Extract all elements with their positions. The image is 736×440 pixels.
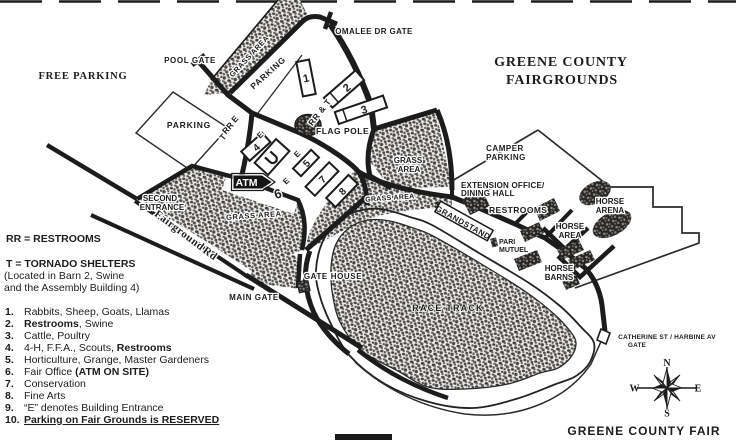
svg-text:8.: 8. xyxy=(5,390,14,402)
svg-text:BARNS: BARNS xyxy=(545,273,574,282)
svg-text:Fine Arts: Fine Arts xyxy=(24,390,65,402)
svg-text:Rabbits, Sheep, Goats, Llamas: Rabbits, Sheep, Goats, Llamas xyxy=(24,306,169,318)
svg-text:9.: 9. xyxy=(5,402,14,414)
svg-text:HORSE: HORSE xyxy=(556,222,585,231)
svg-text:RR = RESTROOMS: RR = RESTROOMS xyxy=(6,233,101,245)
svg-text:MAIN GATE: MAIN GATE xyxy=(229,293,279,302)
svg-text:Cattle, Poultry: Cattle, Poultry xyxy=(24,330,91,342)
svg-text:FAIRGROUNDS: FAIRGROUNDS xyxy=(506,73,618,88)
svg-text:GATE: GATE xyxy=(628,342,647,349)
svg-text:GRASS: GRASS xyxy=(394,156,423,165)
svg-text:MUTUEL: MUTUEL xyxy=(499,247,529,254)
svg-text:4-H, F.F.A., Scouts, Restrooms: 4-H, F.F.A., Scouts, Restrooms xyxy=(24,342,172,354)
svg-text:10.: 10. xyxy=(5,414,20,426)
svg-text:E: E xyxy=(695,384,702,395)
svg-text:FREE PARKING: FREE PARKING xyxy=(38,71,127,82)
svg-text:Fair Office (ATM ON SITE): Fair Office (ATM ON SITE) xyxy=(24,366,149,378)
svg-text:S: S xyxy=(664,409,670,420)
svg-text:4.: 4. xyxy=(5,342,14,354)
svg-text:5.: 5. xyxy=(5,354,14,366)
svg-text:PARKING: PARKING xyxy=(167,120,211,130)
svg-text:RESTROOMS: RESTROOMS xyxy=(489,205,547,215)
svg-text:CATHERINE ST / HARBINE AV: CATHERINE ST / HARBINE AV xyxy=(618,334,716,341)
svg-text:7.: 7. xyxy=(5,378,14,390)
svg-text:GATE HOUSE: GATE HOUSE xyxy=(304,272,362,281)
svg-text:Parking on Fair Grounds is RES: Parking on Fair Grounds is RESERVED xyxy=(24,414,220,426)
svg-text:AREA: AREA xyxy=(559,231,582,240)
svg-text:ARENA: ARENA xyxy=(596,206,625,215)
svg-text:T = TORNADO SHELTERS: T = TORNADO SHELTERS xyxy=(6,258,135,270)
svg-text:POOL GATE: POOL GATE xyxy=(164,56,216,65)
svg-text:N: N xyxy=(663,358,671,369)
svg-text:GREENE COUNTY FAIR: GREENE COUNTY FAIR xyxy=(567,424,720,438)
svg-text:1.: 1. xyxy=(5,306,14,318)
svg-text:Horticulture, Grange, Master G: Horticulture, Grange, Master Gardeners xyxy=(24,354,209,366)
svg-text:HORSE: HORSE xyxy=(545,264,574,273)
svg-text:CAMPER: CAMPER xyxy=(486,144,524,153)
svg-text:“E” denotes Building Entrance: “E” denotes Building Entrance xyxy=(24,402,164,414)
svg-text:DINING HALL: DINING HALL xyxy=(461,189,515,198)
svg-text:and the Assembly Building 4): and the Assembly Building 4) xyxy=(4,282,139,294)
svg-text:RACE TRACK: RACE TRACK xyxy=(412,303,484,313)
svg-text:(Located in Barn 2, Swine: (Located in Barn 2, Swine xyxy=(4,270,124,282)
svg-text:W: W xyxy=(630,384,640,395)
svg-text:Restrooms, Swine: Restrooms, Swine xyxy=(24,318,113,330)
svg-text:3.: 3. xyxy=(5,330,14,342)
svg-text:SECOND: SECOND xyxy=(143,194,177,203)
svg-text:6.: 6. xyxy=(5,366,14,378)
svg-text:ATM: ATM xyxy=(236,177,258,189)
svg-text:FLAG POLE: FLAG POLE xyxy=(316,126,369,136)
svg-text:HORSE: HORSE xyxy=(596,197,625,206)
svg-text:AREA: AREA xyxy=(398,165,421,174)
svg-text:Conservation: Conservation xyxy=(24,378,86,390)
svg-text:2.: 2. xyxy=(5,318,14,330)
svg-text:PARKING: PARKING xyxy=(486,153,526,162)
svg-text:PARI: PARI xyxy=(499,239,515,246)
svg-text:GREENE COUNTY: GREENE COUNTY xyxy=(494,55,628,70)
svg-text:OMALEE DR GATE: OMALEE DR GATE xyxy=(335,27,413,36)
